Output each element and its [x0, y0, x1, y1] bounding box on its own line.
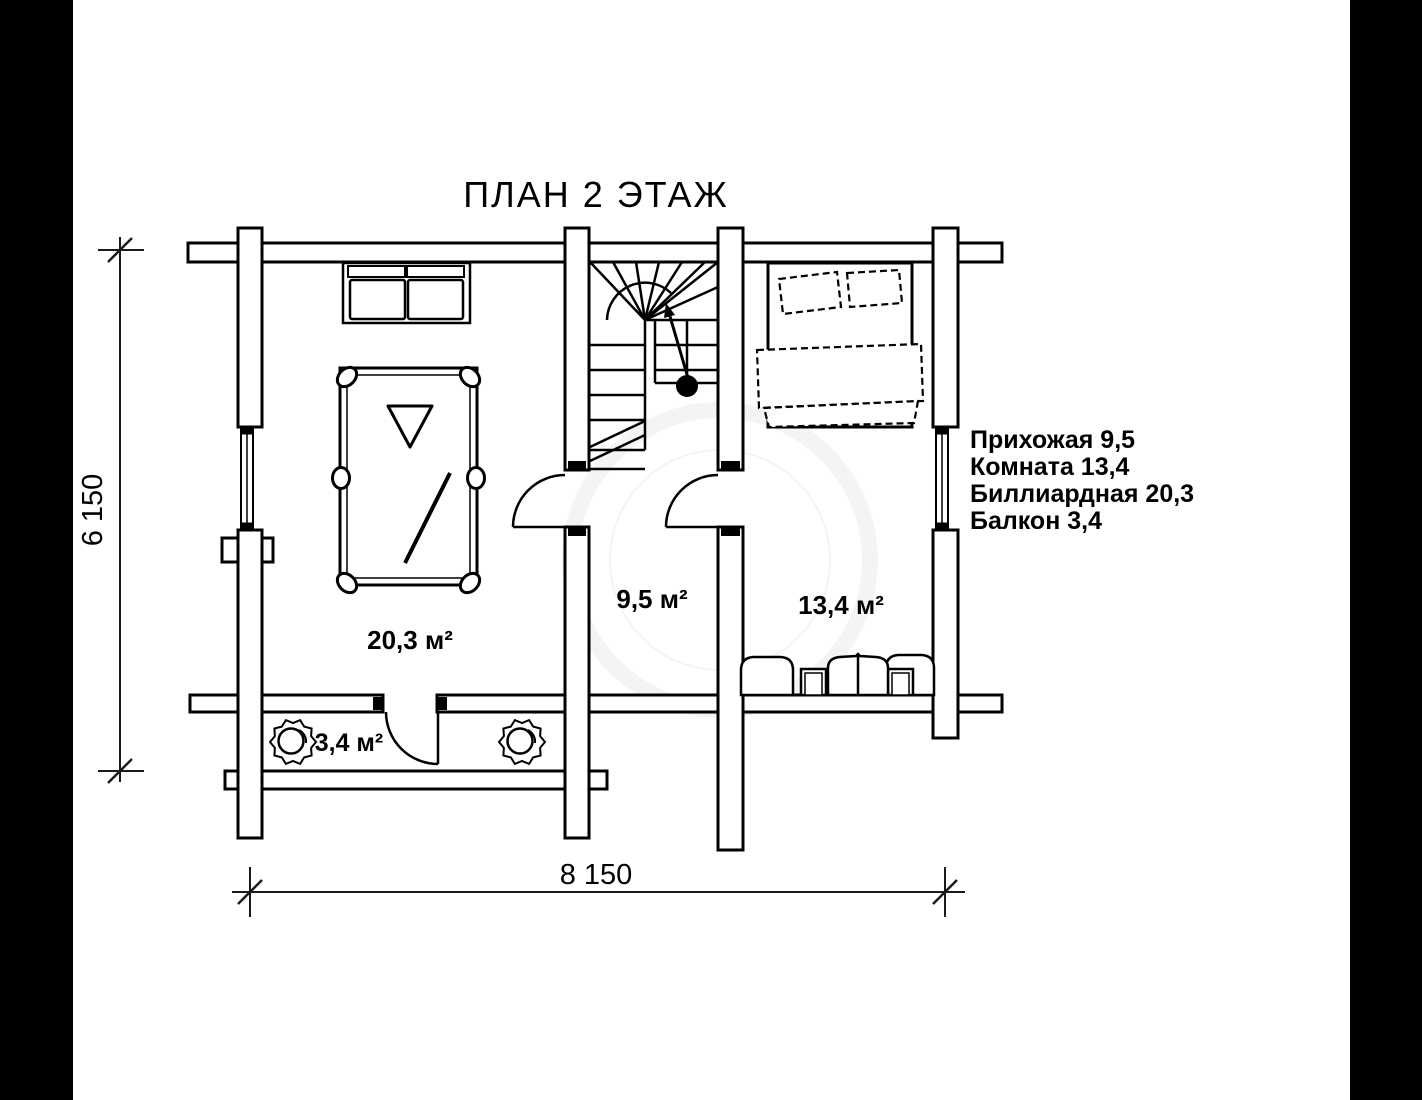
screenshot-root: ПЛАН 2 ЭТАЖ 6 150 8 150 20,3 м² 9,5 м² 1… — [0, 0, 1422, 1100]
legend: Прихожая 9,5 Комната 13,4 Биллиардная 20… — [970, 426, 1194, 535]
bedroom-cabinets — [741, 654, 934, 695]
wall-left-upper — [238, 228, 262, 427]
room-label-balcony: 3,4 м² — [315, 729, 384, 757]
legend-line-bedroom: Комната 13,4 — [970, 453, 1130, 481]
billiard-table — [333, 364, 485, 597]
room-label-bedroom: 13,4 м² — [798, 590, 884, 620]
wall-right-upper — [933, 228, 958, 427]
window-left — [241, 427, 253, 530]
plant-symbol — [270, 720, 316, 764]
wall-stair-left-upper — [565, 228, 589, 470]
floor-plan-drawing: ПЛАН 2 ЭТАЖ 6 150 8 150 20,3 м² 9,5 м² 1… — [0, 0, 1422, 1100]
stair-newel-post — [676, 375, 698, 397]
plan-title: ПЛАН 2 ЭТАЖ — [463, 174, 728, 215]
dimension-label-horizontal: 8 150 — [560, 859, 633, 891]
sofa — [343, 263, 470, 323]
wall-stair-right-upper — [718, 228, 743, 470]
wall-right-lower — [933, 530, 958, 738]
pocket — [468, 468, 485, 489]
room-label-billiard: 20,3 м² — [367, 625, 453, 655]
dimension-label-vertical: 6 150 — [77, 474, 109, 547]
staircase — [590, 262, 718, 469]
wall-bottom-left — [190, 695, 383, 712]
blanket — [757, 344, 923, 408]
room-label-hall: 9,5 м² — [616, 584, 688, 614]
balcony-rail — [225, 771, 607, 789]
pocket — [333, 468, 350, 489]
pillow — [779, 272, 841, 314]
wall-left-lower — [238, 530, 262, 838]
wall-stair-right-lower — [718, 527, 743, 850]
stair-arrow-head — [664, 303, 675, 318]
pillow — [847, 270, 902, 307]
bed — [757, 263, 923, 427]
door-bedroom — [666, 475, 718, 527]
wall-top — [188, 243, 1002, 262]
window-right — [936, 427, 948, 530]
door-billiard — [513, 475, 565, 527]
legend-line-hall: Прихожая 9,5 — [970, 426, 1135, 454]
door-balcony — [386, 712, 438, 764]
legend-line-balcony: Балкон 3,4 — [970, 507, 1102, 535]
plant-symbol — [499, 720, 545, 764]
legend-line-billiard: Биллиардная 20,3 — [970, 480, 1194, 508]
wall-stair-left-lower — [565, 527, 589, 838]
